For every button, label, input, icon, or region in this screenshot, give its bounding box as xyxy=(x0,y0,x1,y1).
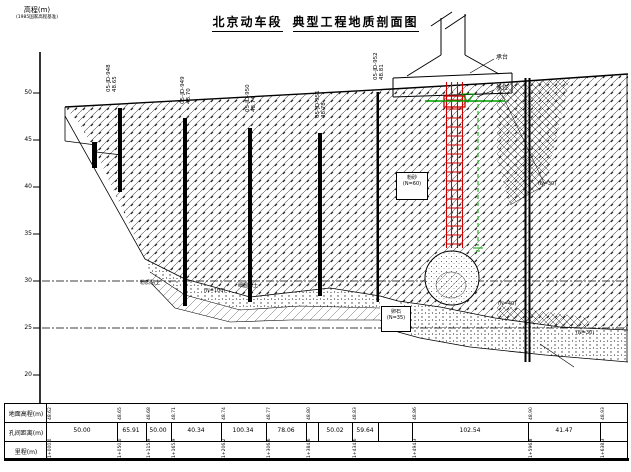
mileage-value: 1+494.3 xyxy=(413,438,418,458)
water-level-label: 水位 xyxy=(496,83,508,92)
elevation-axis xyxy=(33,52,40,403)
ground-elevation-value: 48.86 xyxy=(413,407,418,420)
axis-label: 高程(m) xyxy=(16,7,58,14)
stratum-label: (N=40) xyxy=(498,301,516,307)
axis-caption: 高程(m) (1985国家高程基准) xyxy=(16,7,58,21)
mileage-value: 1+384.6 xyxy=(307,438,312,458)
borehole-bar xyxy=(529,78,531,362)
stratum-label: (N=30) xyxy=(576,330,594,336)
spacing-value: 102.54 xyxy=(450,427,490,434)
borehole-label: 05-JD-94848.65 xyxy=(106,64,118,92)
profile-drawing xyxy=(0,0,631,472)
stratum-label: 细圆砾土 xyxy=(238,282,258,289)
ground-elevation-value: 48.93 xyxy=(601,407,606,420)
tick-label: 20 xyxy=(16,371,32,378)
table-row-line xyxy=(4,422,627,423)
spacing-value: 50.00 xyxy=(62,427,102,434)
mileage-value: 1+206.2 xyxy=(222,438,227,458)
tick-label: 40 xyxy=(16,183,32,190)
mileage-value: 1+115.9 xyxy=(147,438,152,458)
tick-label: 30 xyxy=(16,277,32,284)
drawing-title: 北京动车段典型工程地质剖面图 xyxy=(0,13,631,30)
borehole-bar xyxy=(318,133,322,296)
tick-label: 50 xyxy=(16,89,32,96)
mileage-value: 1+165.9 xyxy=(172,438,177,458)
ground-elevation-value: 48.62 xyxy=(48,407,53,420)
spacing-value: 78.06 xyxy=(266,427,306,434)
mileage-value: 1+434.6 xyxy=(353,438,358,458)
stratum-label: (N=100) xyxy=(204,288,225,294)
ground-elevation-value: 48.83 xyxy=(353,407,358,420)
stratum-box-label: 卵石 (N=35) xyxy=(381,306,411,332)
tick-label: 25 xyxy=(16,324,32,331)
borehole-bar xyxy=(183,118,187,306)
title-part2: 典型工程地质剖面图 xyxy=(293,15,419,32)
ground-elevation-value: 48.77 xyxy=(267,407,272,420)
borehole-bar xyxy=(525,78,527,362)
spacing-value: 50.00 xyxy=(138,427,178,434)
data-table-thick-bottom xyxy=(4,458,629,461)
table-row-label-mileage: 里程(m) xyxy=(6,447,46,456)
mileage-value: 1+596.8 xyxy=(529,438,534,458)
ground-elevation-value: 48.71 xyxy=(172,407,177,420)
spacing-value: 59.64 xyxy=(345,427,385,434)
stratum-box-label: 粉砂 (N=60) xyxy=(396,172,428,200)
title-part1: 北京动车段 xyxy=(212,15,282,32)
mileage-value: 1+000.0 xyxy=(48,438,53,458)
tick-label: 35 xyxy=(16,230,32,237)
borehole-label: 05-JD-95148.78 xyxy=(315,90,327,118)
borehole-bar xyxy=(248,128,252,302)
stratum-label: (N=30) xyxy=(538,181,556,187)
table-row-label-elevation: 地面高程(m) xyxy=(6,409,46,418)
ground-elevation-value: 48.65 xyxy=(118,407,123,420)
ground-elevation-value: 48.74 xyxy=(222,407,227,420)
ground-elevation-value: 48.90 xyxy=(529,407,534,420)
spacing-value: 100.34 xyxy=(223,427,263,434)
pile-tip-detail-circle xyxy=(425,251,479,305)
geological-profile-sheet: 北京动车段典型工程地质剖面图 高程(m) (1985国家高程基准) 50 45 … xyxy=(0,0,631,472)
cap-leader-line xyxy=(470,59,494,73)
borehole-label: 05-JD-95248.81 xyxy=(373,52,385,80)
tick-label: 45 xyxy=(16,136,32,143)
spacing-value: 41.47 xyxy=(544,427,584,434)
table-row-label-spacing: 孔间距离(m) xyxy=(6,428,46,437)
ground-elevation-value: 48.68 xyxy=(147,407,152,420)
borehole-bar xyxy=(92,142,97,168)
mileage-value: 1+638.3 xyxy=(601,438,606,458)
ground-elevation-value: 48.80 xyxy=(307,407,312,420)
table-label-col-line xyxy=(46,403,47,459)
spacing-value: 40.34 xyxy=(176,427,216,434)
borehole-label: 05-JD-94948.70 xyxy=(180,76,192,104)
mileage-value: 1+306.6 xyxy=(267,438,272,458)
borehole-bar xyxy=(377,92,380,302)
borehole-label: 05-JD-95048.74 xyxy=(245,84,257,112)
borehole-bar xyxy=(118,108,122,192)
pile-cap-label: 承台 xyxy=(496,52,508,61)
strata-hatch-regions xyxy=(65,74,628,362)
stratum-label: 粉质黏土 xyxy=(140,279,160,286)
axis-datum: (1985国家高程基准) xyxy=(16,14,58,21)
mileage-value: 1+050.0 xyxy=(118,438,123,458)
